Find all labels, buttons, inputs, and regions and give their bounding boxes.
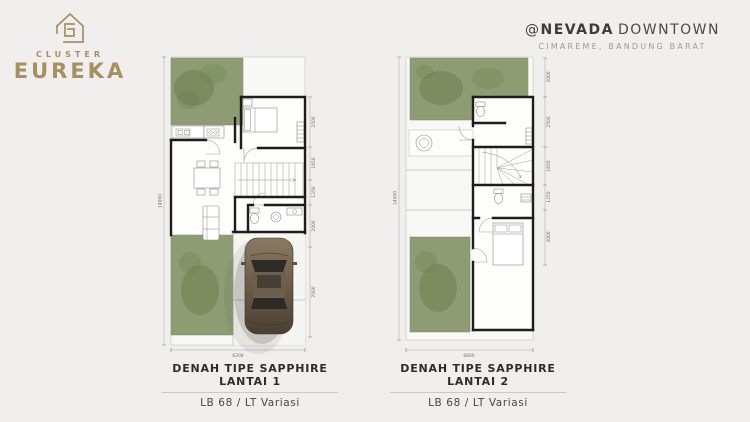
floor-plan-2-drawing: 14000 2000 2500 1650 1250 3000 6600 [393, 48, 558, 358]
project-header: @NEVADADOWNTOWN CIMAREME, BANDUNG BARAT [525, 22, 720, 51]
dimension-label: 3000 [546, 231, 552, 242]
brand-name-label: EUREKA [10, 59, 130, 83]
plan2-title: DENAH TIPE SAPPHIRE LANTAI 2 [378, 362, 578, 388]
kitchen-counter [172, 126, 224, 138]
caption-divider [162, 392, 338, 393]
floor-plan-1-drawing: 14000 2500 1650 1250 2000 7000 6200 [158, 48, 318, 358]
plan2-subtitle: LB 68 / LT Variasi [378, 397, 578, 409]
cluster-eureka-logo: CLUSTER EUREKA [10, 8, 130, 83]
garden-top-left [171, 58, 243, 125]
house-logo-icon [47, 8, 93, 48]
dimension-label: 7000 [311, 286, 317, 297]
project-name: @NEVADADOWNTOWN [525, 22, 720, 38]
floor-plan-2: 14000 2000 2500 1650 1250 3000 6600 [393, 48, 558, 358]
brand-cluster-label: CLUSTER [10, 50, 130, 59]
dimension-label: 1650 [311, 157, 317, 168]
plan1-caption: DENAH TIPE SAPPHIRE LANTAI 1 LB 68 / LT … [150, 362, 350, 409]
project-name-light: DOWNTOWN [618, 22, 720, 38]
garden-bottom-left-2 [410, 237, 470, 332]
plan1-subtitle: LB 68 / LT Variasi [150, 397, 350, 409]
dimension-label: 6200 [232, 353, 243, 358]
caption-divider [390, 392, 566, 393]
dimension-label: 2000 [546, 71, 552, 82]
floor-plan-1: 14000 2500 1650 1250 2000 7000 6200 [158, 48, 318, 358]
garden-bottom-left [171, 235, 233, 335]
dimension-label: 14000 [393, 191, 399, 205]
sofa [203, 206, 219, 240]
plan1-title: DENAH TIPE SAPPHIRE LANTAI 1 [150, 362, 350, 388]
dimension-label: 1650 [546, 160, 552, 171]
dimension-label: 1250 [311, 186, 317, 197]
dimension-label: 14000 [158, 194, 164, 208]
dimension-label: 6600 [463, 353, 474, 358]
dimension-label: 2500 [546, 116, 552, 127]
project-name-bold: NEVADA [541, 22, 614, 38]
plan2-caption: DENAH TIPE SAPPHIRE LANTAI 2 LB 68 / LT … [378, 362, 578, 409]
bed-2 [493, 223, 523, 265]
wash-basin [416, 135, 432, 151]
dimension-label: 2500 [311, 116, 317, 127]
dimension-label: 1250 [546, 191, 552, 202]
project-at: @ [525, 22, 541, 38]
dimension-label: 2000 [311, 220, 317, 231]
wardrobe [297, 122, 304, 142]
